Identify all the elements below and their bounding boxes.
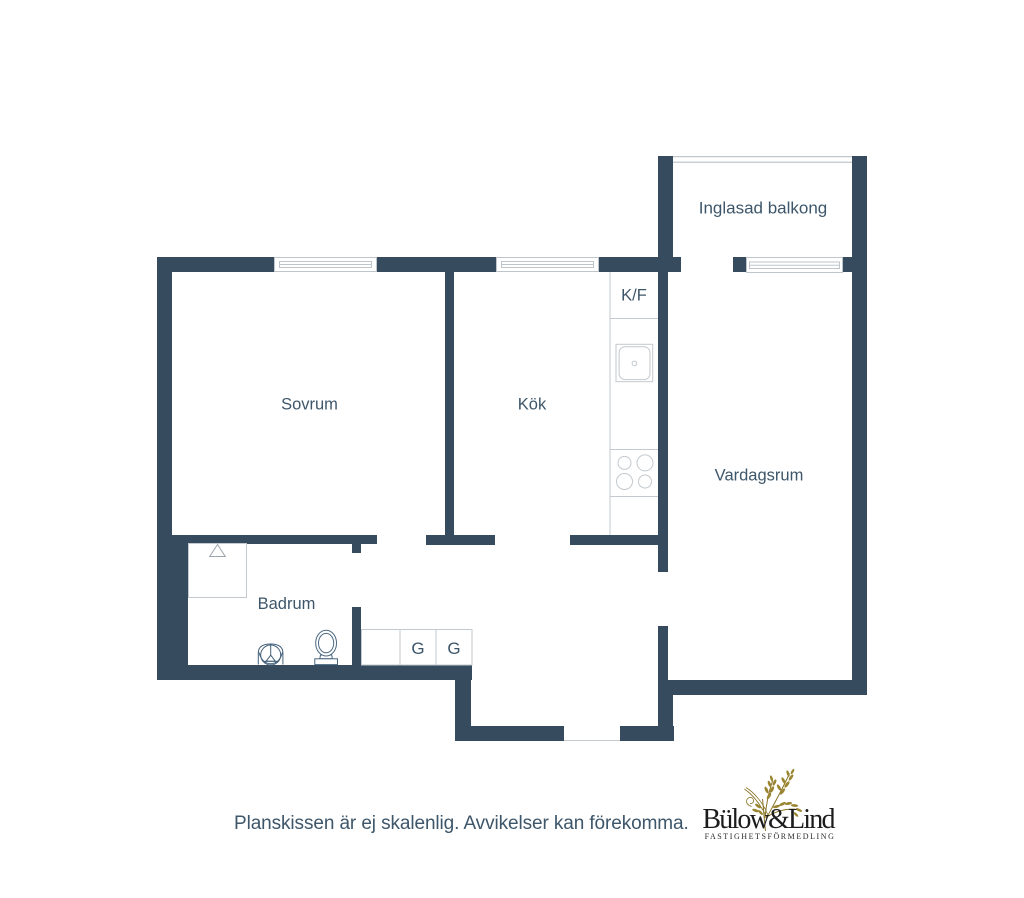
svg-text:FASTIGHETSFÖRMEDLING: FASTIGHETSFÖRMEDLING xyxy=(705,832,836,841)
svg-text:Sovrum: Sovrum xyxy=(281,396,338,414)
svg-text:Planskissen är ej skalenlig. A: Planskissen är ej skalenlig. Avvikelser … xyxy=(234,813,689,834)
svg-text:Inglasad balkong: Inglasad balkong xyxy=(699,199,828,218)
svg-text:Vardagsrum: Vardagsrum xyxy=(715,467,804,485)
svg-text:Kök: Kök xyxy=(518,396,547,414)
svg-text:Badrum: Badrum xyxy=(258,595,316,613)
svg-text:G: G xyxy=(447,639,460,658)
svg-text:K/F: K/F xyxy=(621,287,647,305)
svg-text:G: G xyxy=(411,639,424,658)
svg-text:Bülow&Lind: Bülow&Lind xyxy=(702,804,835,835)
